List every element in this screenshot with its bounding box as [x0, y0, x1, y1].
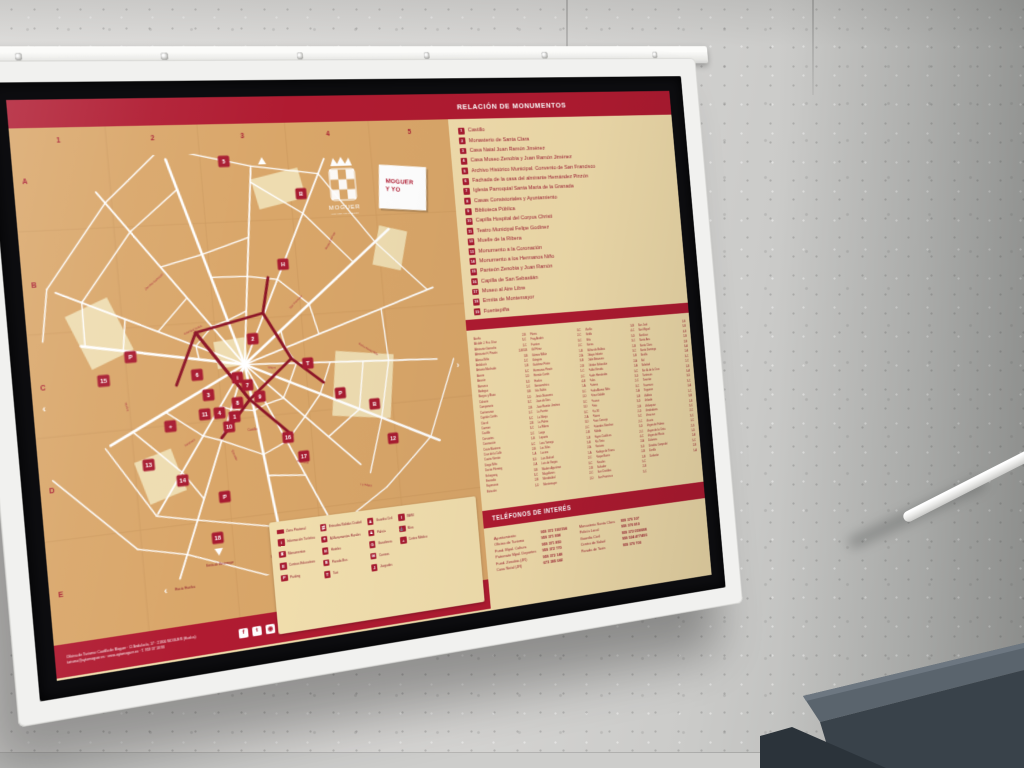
- phone-labels: AyuntamientoOficina de TurismoFund. Mpal…: [494, 530, 540, 598]
- bus-stop-icon: B: [323, 559, 330, 567]
- screw: [541, 52, 547, 58]
- legend-item: +Centro Médico: [400, 534, 428, 544]
- monument-name: Iglesia Parroquial Santa María de la Gra…: [473, 184, 574, 194]
- screw: [297, 53, 304, 60]
- svg-text:12: 12: [390, 436, 396, 442]
- monument-number: 12: [468, 238, 475, 245]
- brand-card: MOGUER Y YO: [379, 165, 428, 213]
- monument-name: Teatro Municipal Felipe Godínez: [477, 224, 550, 234]
- legend-column: Zona PeatonaliInformación Turística♜Monu…: [277, 525, 322, 625]
- legend-item: iInformación Turística: [278, 534, 316, 546]
- legend-column: ⇄Entradas/Salidas Ciudad✦A Monumentos Ru…: [320, 519, 369, 618]
- phone-labels: Monasterio Santa ClaraPolicía LocalGuard…: [579, 519, 620, 585]
- monument-number: 13: [468, 248, 475, 255]
- monument-name: Casa Natal Juan Ramón Jiménez: [470, 146, 546, 154]
- svg-text:P: P: [223, 495, 228, 502]
- education-icon: E: [280, 562, 287, 570]
- legend-item: PParking: [281, 570, 319, 582]
- monument-name: Fachada de la casa del almirante Hernánd…: [472, 174, 588, 184]
- monument-number: 7: [463, 188, 470, 195]
- legend-label: Parking: [290, 574, 301, 580]
- board-frame: RELACIÓN DE MONUMENTOS 12345ABCDE: [0, 58, 743, 728]
- monument-number: 18: [473, 298, 480, 305]
- index-column: Flores3-CFray Andrés2-CFuentes3-CGil Pér…: [530, 328, 595, 496]
- monument-number: 16: [471, 278, 478, 285]
- phones-group: Monasterio Santa ClaraPolicía LocalGuard…: [579, 515, 651, 585]
- facebook-icon: f: [238, 627, 248, 638]
- wall-seam: [812, 0, 814, 95]
- hotel-icon: H: [322, 547, 329, 555]
- svg-text:3: 3: [207, 393, 211, 399]
- monument-name: Monumento a la Coronación: [478, 245, 542, 254]
- social-icons: ft◉: [238, 623, 275, 638]
- handrail: [901, 439, 1024, 523]
- photo-scene: RELACIÓN DE MONUMENTOS 12345ABCDE: [0, 0, 1024, 768]
- legend-item: IINEM: [398, 511, 426, 521]
- legend-item: ✉Correos: [370, 550, 396, 560]
- legend-label: Centros Educativos: [289, 560, 316, 568]
- phone-numbers: 959 370 107959 370 810959 372 059/088959…: [620, 515, 650, 578]
- legend-item: JJuzgados: [371, 561, 397, 571]
- legend-label: Parada Bus: [332, 558, 348, 564]
- svg-text:B: B: [373, 402, 377, 408]
- legend-column: IINEM⚓Ríos+Centro Médico: [398, 511, 433, 606]
- legend-label: Juzgados: [380, 563, 393, 569]
- monument-number: 19: [474, 308, 481, 315]
- tourist-info-icon: i: [278, 539, 285, 547]
- monument-name: Capilla Hospital del Corpus Christi: [476, 214, 553, 224]
- legend-item: Zona Peatonal: [277, 525, 314, 534]
- phones-group: AyuntamientoOficina de TurismoFund. Mpal…: [494, 526, 572, 599]
- taxi-icon: T: [324, 570, 331, 578]
- twitter-icon: t: [252, 625, 262, 636]
- legend-label: Guardia Civil: [376, 516, 393, 522]
- street-name: San Francisco: [598, 474, 614, 481]
- svg-text:2: 2: [251, 337, 255, 343]
- svg-text:11: 11: [202, 412, 209, 419]
- street-grid-ref: 2-D: [590, 476, 594, 482]
- svg-text:P: P: [128, 355, 133, 362]
- svg-text:16: 16: [285, 435, 292, 442]
- svg-text:10: 10: [226, 425, 233, 432]
- svg-text:8: 8: [236, 401, 240, 407]
- monument-name: Capilla de San Sebastián: [481, 275, 538, 285]
- map-panel: RELACIÓN DE MONUMENTOS 12345ABCDE: [6, 91, 712, 681]
- stairs: [760, 564, 1024, 768]
- street-grid-ref: 1-A: [693, 448, 697, 453]
- legend-label: Ríos: [408, 525, 414, 530]
- rural-monuments-icon: ✦: [321, 535, 328, 542]
- monument-number: 5: [461, 168, 468, 175]
- legend-label: Correos: [379, 552, 390, 557]
- legend-label: Zona Peatonal: [286, 526, 306, 533]
- svg-text:17: 17: [301, 454, 308, 461]
- board-bezel: RELACIÓN DE MONUMENTOS 12345ABCDE: [0, 76, 726, 701]
- svg-text:1: 1: [233, 415, 237, 421]
- street-grid-ref: 3-C: [643, 469, 647, 474]
- street-index: Aceña2-BAlcalde J. Fco. Díaz3-CAlmirante…: [466, 313, 705, 512]
- river-icon: ⚓: [399, 525, 406, 532]
- index-column: San José2-BSan Miguel3-BSanlúcar4-BSanta…: [638, 319, 699, 482]
- monument-name: Casas Consistoriales y Ayuntamiento: [474, 195, 557, 204]
- legend-label: Policía: [377, 529, 386, 534]
- svg-text:B: B: [299, 192, 303, 198]
- street-name: Estación: [487, 488, 497, 494]
- monument-name: Museo al Aire Libre: [482, 285, 526, 294]
- legend-item: ♟Policía: [368, 527, 394, 537]
- monument-number: 1: [458, 128, 465, 135]
- monuments-title: RELACIÓN DE MONUMENTOS: [457, 100, 567, 111]
- monument-number: 6: [462, 178, 469, 185]
- street-grid-ref: 1-D: [535, 483, 539, 489]
- index-column: Murillo3-BNiebla4-CNiña3-DNueva3-CNúñez …: [585, 324, 648, 489]
- monument-number: 14: [469, 258, 476, 265]
- police-icon: ♟: [368, 529, 375, 536]
- legend-item: ♟Guardia Civil: [367, 515, 393, 525]
- information-board: RELACIÓN DE MONUMENTOS 12345ABCDE: [0, 58, 743, 728]
- svg-text:13: 13: [145, 463, 152, 470]
- monument-number: 9: [465, 208, 472, 215]
- monument-number: 15: [470, 268, 477, 275]
- street-name: Montemayor: [543, 481, 557, 488]
- floor: [0, 753, 830, 768]
- info-column: 1Castillo2Monasterio de Santa Clara3Casa…: [446, 91, 712, 609]
- svg-text:18: 18: [214, 536, 221, 543]
- legend-column: ♟Guardia Civil♟PolicíaGGasolinera✉Correo…: [367, 515, 400, 611]
- legend-label: Taxi: [333, 571, 339, 576]
- crest-city-name: MOGUER: [329, 203, 361, 211]
- monument-name: Casa Museo Zenobia y Juan Ramón Jiménez: [470, 155, 572, 164]
- svg-text:5: 5: [222, 160, 226, 166]
- screw: [161, 53, 169, 60]
- gas-station-icon: G: [369, 541, 376, 548]
- brand-line2: Y YO: [386, 186, 401, 194]
- legend-label: Centro Médico: [409, 535, 428, 542]
- monument-name: Castillo: [468, 128, 485, 134]
- monument-number: 10: [466, 218, 473, 225]
- monument-name: Monumento a los Hermanos Niño: [479, 254, 554, 264]
- legend-item: TTaxi: [324, 565, 366, 578]
- svg-text:6: 6: [195, 373, 199, 379]
- monument-name: Archivo Histórico Municipal. Convento de…: [471, 164, 595, 174]
- index-column: Aceña2-BAlcalde J. Fco. Díaz3-CAlmirante…: [473, 333, 539, 504]
- legend-item: ECentros Educativos: [280, 558, 318, 570]
- legend-label: INEM: [407, 513, 414, 518]
- monument-icon: ♜: [279, 550, 286, 558]
- legend-label: A Monumentos Rurales: [330, 532, 361, 540]
- monument-name: Ermita de Montemayor: [483, 295, 535, 305]
- pedestrian-zone-swatch: [277, 529, 284, 534]
- monument-number: 8: [464, 198, 471, 205]
- parking-icon: P: [281, 574, 288, 582]
- phone-numbers: 959 372 193/194959 371 898959 371 850959…: [540, 526, 572, 591]
- screw: [14, 53, 22, 60]
- guardia-civil-icon: ♟: [367, 518, 374, 525]
- inem-icon: I: [398, 513, 405, 520]
- monument-name: Fuentepiña: [484, 307, 510, 315]
- svg-text:15: 15: [100, 379, 107, 386]
- legend-item: ⇄Entradas/Salidas Ciudad: [320, 519, 362, 531]
- legend-item: ♜Monumentos: [279, 546, 317, 558]
- monument-number: 11: [467, 228, 474, 235]
- monument-number: 3: [460, 148, 467, 155]
- legend-item: GGasolinera: [369, 538, 395, 548]
- monument-name: Monasterio de Santa Clara: [469, 136, 530, 143]
- monuments-list: 1Castillo2Monasterio de Santa Clara3Casa…: [448, 115, 689, 320]
- monument-name: Muelle de la Ribera: [477, 236, 521, 244]
- legend-label: Información Turística: [287, 536, 315, 544]
- monument-number: 2: [459, 138, 466, 145]
- legend-label: Monumentos: [288, 549, 306, 556]
- courthouse-icon: J: [371, 564, 378, 571]
- legend-item: BParada Bus: [323, 554, 365, 566]
- street-name: Zurbarán: [649, 453, 659, 459]
- svg-text:D: D: [49, 488, 55, 496]
- monument-number: 17: [472, 288, 479, 295]
- svg-text:Nueva: Nueva: [268, 365, 277, 369]
- monument-number: 4: [461, 158, 468, 165]
- svg-text:C: C: [40, 385, 46, 393]
- legend-label: Hoteles: [331, 547, 341, 552]
- svg-text:7: 7: [246, 383, 250, 389]
- svg-text:P: P: [338, 391, 342, 397]
- screw: [423, 52, 430, 58]
- screw: [652, 52, 658, 58]
- svg-text:9: 9: [258, 395, 262, 401]
- post-office-icon: ✉: [370, 552, 377, 559]
- legend-item: ⚓Ríos: [399, 522, 427, 532]
- monument-name: Biblioteca Pública: [475, 206, 516, 214]
- legend-item: HHoteles: [322, 542, 364, 554]
- legend-label: Gasolinera: [378, 540, 392, 546]
- monument-name: Panteón Zenobia y Juan Ramón: [480, 264, 553, 274]
- legend-label: Entradas/Salidas Ciudad: [329, 520, 362, 528]
- svg-text:B: B: [31, 282, 37, 290]
- svg-text:+: +: [169, 424, 173, 431]
- legend-item: ✦A Monumentos Rurales: [321, 531, 363, 543]
- svg-text:H: H: [281, 262, 285, 268]
- svg-text:A: A: [22, 179, 28, 187]
- instagram-icon: ◉: [265, 623, 275, 634]
- city-exits-icon: ⇄: [320, 524, 327, 531]
- medical-center-icon: +: [400, 536, 407, 543]
